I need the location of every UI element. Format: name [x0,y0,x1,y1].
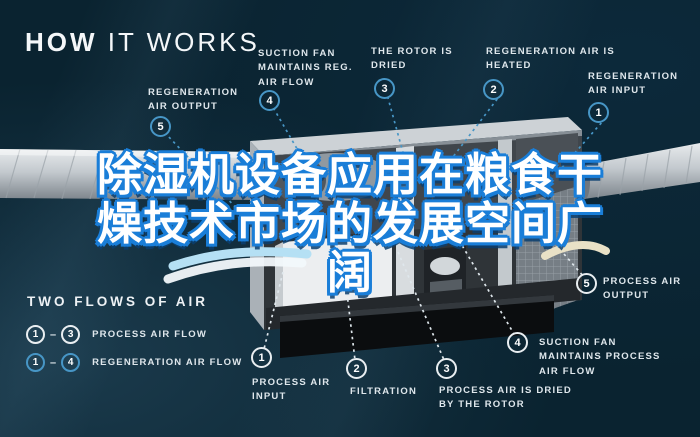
step-circle-process-1: 1 [251,347,272,368]
step-circle-process-3: 3 [436,358,457,379]
legend-label-process: PROCESS AIR FLOW [92,329,207,340]
step-circle-regeneration-3: 3 [374,78,395,99]
label-suction-fan-process: SUCTION FAN MAINTAINS PROCESS AIR FLOW [539,336,665,379]
label-process-air-input: PROCESS AIR INPUT [252,376,344,405]
legend-row-regeneration: 1 – 4 REGENERATION AIR FLOW [26,353,242,372]
legend-range-dash: – [50,357,56,369]
legend-label-regeneration: REGENERATION AIR FLOW [92,357,242,368]
page-title-light: IT WORKS [98,27,260,57]
legend-row-process: 1 – 3 PROCESS AIR FLOW [26,325,207,344]
label-process-air-dried: PROCESS AIR IS DRIED BY THE ROTOR [439,384,581,413]
step-circle-regeneration-4: 4 [259,90,280,111]
label-suction-fan-reg: SUCTION FAN MAINTAINS REG. AIR FLOW [258,47,358,90]
overlay-title-line1: 除湿机设备应用在粮食干 [0,150,700,199]
page-title-bold: HOW [25,27,98,57]
legend-circle-from: 1 [26,325,45,344]
legend-circle-from: 1 [26,353,45,372]
legend-circle-to: 3 [61,325,80,344]
label-rotor-dried: THE ROTOR IS DRIED [371,45,455,74]
label-regeneration-air-heated: REGENERATION AIR IS HEATED [486,45,618,74]
legend-range-dash: – [50,329,56,341]
infographic-canvas: HOW IT WORKS 除湿机设备应用在粮食干 燥技术市场的发展空间广 阔 R… [0,0,700,437]
label-regeneration-air-output: REGENERATION AIR OUTPUT [148,86,252,115]
step-circle-process-2: 2 [346,358,367,379]
step-circle-regeneration-5: 5 [150,116,171,137]
label-regeneration-air-input: REGENERATION AIR INPUT [588,70,698,99]
overlay-title-line3: 阔 [0,248,700,297]
step-circle-regeneration-2: 2 [483,79,504,100]
step-circle-process-4: 4 [507,332,528,353]
label-filtration: FILTRATION [350,385,440,399]
overlay-title-line2: 燥技术市场的发展空间广 [0,199,700,248]
page-title: HOW IT WORKS [25,27,260,58]
legend-circle-to: 4 [61,353,80,372]
step-circle-regeneration-1: 1 [588,102,609,123]
